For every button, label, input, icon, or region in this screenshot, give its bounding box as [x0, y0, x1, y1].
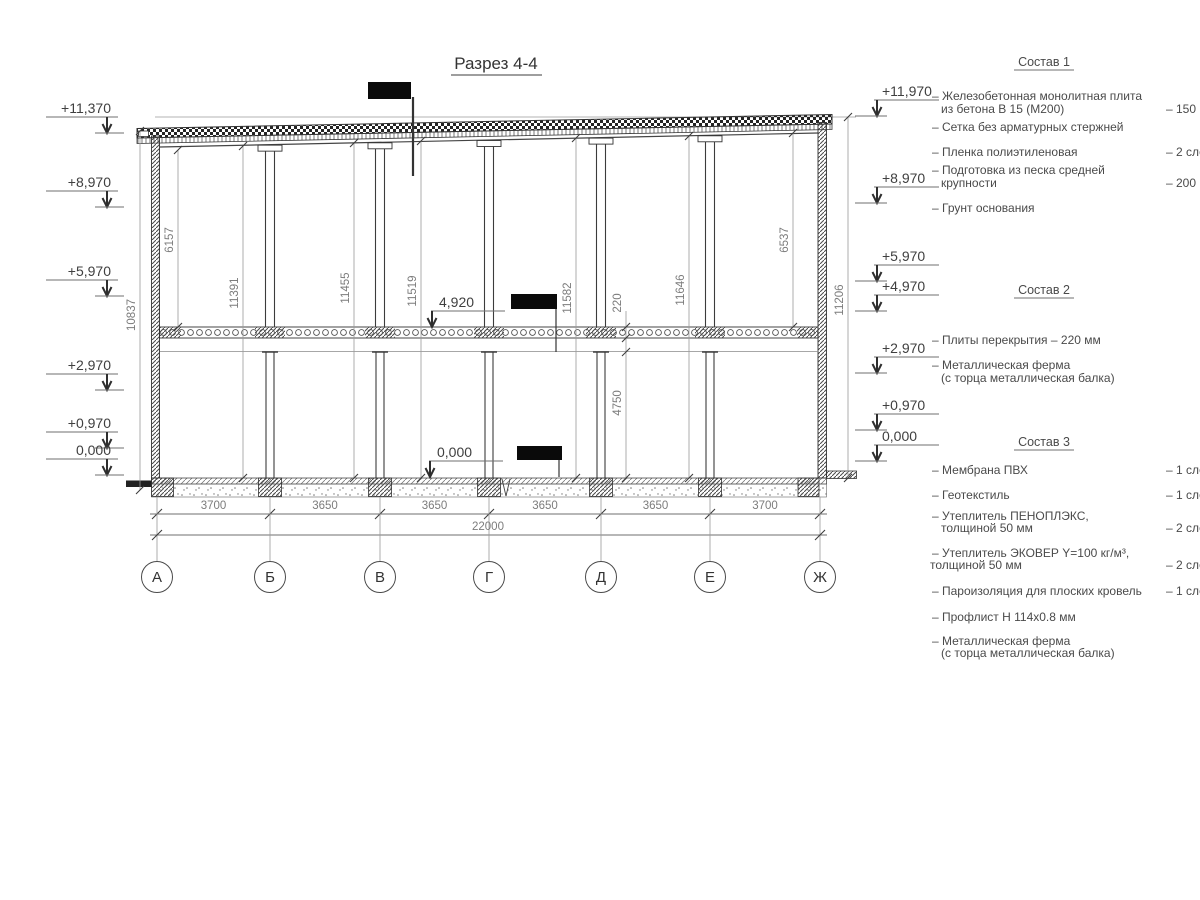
bay-dim-value: 3700	[752, 500, 778, 512]
vertical-dim: 6537	[779, 129, 797, 331]
vertical-dim: 11206	[834, 113, 852, 482]
axis-bubble: Д	[586, 562, 617, 593]
note-line: – Железобетонная монолитная плита	[932, 89, 1142, 103]
note-line: – Геотекстиль	[932, 488, 1010, 502]
axis-label: Ж	[813, 569, 827, 586]
footing	[798, 478, 819, 497]
dim-value: 6157	[164, 227, 176, 253]
column-lower	[702, 352, 718, 478]
vertical-dim: 4750	[612, 348, 630, 482]
column-upper	[477, 140, 501, 327]
right-wall	[818, 123, 827, 479]
dim-value: 11582	[562, 282, 574, 313]
level-value: +2,970	[882, 340, 925, 356]
level-value: +0,970	[68, 415, 111, 431]
axis-label: Е	[705, 569, 715, 586]
level-value: 4,920	[439, 294, 474, 310]
footing	[152, 478, 174, 497]
note-line: – Мембрана ПВХ	[932, 463, 1028, 477]
footing	[699, 478, 722, 497]
dim-value: 4750	[612, 390, 624, 416]
vertical-dim: 11646	[675, 132, 693, 482]
level-mark: +5,970	[46, 263, 124, 296]
level-mark: +8,970	[46, 174, 124, 207]
note-line: – Грунт основания	[932, 201, 1035, 215]
column-capital	[477, 140, 501, 146]
note-value: – 2 слоя	[1166, 521, 1200, 535]
drawing-title: Разрез 4-4	[454, 54, 537, 73]
floor-support-block	[365, 328, 395, 338]
column-lower	[593, 352, 609, 478]
axis-label: Г	[485, 569, 493, 586]
footing	[259, 478, 282, 497]
bay-dim-value: 3700	[201, 500, 227, 512]
note-item: – Металлическая ферма(с торца металличес…	[932, 358, 1115, 385]
axis-bubble: В	[365, 562, 396, 593]
level-value: +4,970	[882, 278, 925, 294]
blackout-callout	[511, 294, 557, 352]
note-item: – Грунт основания	[932, 201, 1035, 215]
note-item: – Сетка без арматурных стержней	[932, 120, 1123, 134]
note-item: – Мембрана ПВХ– 1 слой	[932, 463, 1200, 477]
level-value: +0,970	[882, 397, 925, 413]
level-value: +11,970	[882, 83, 932, 99]
axis-label: А	[152, 569, 162, 586]
note-group-title: Состав 3	[1018, 435, 1070, 449]
column-capital	[258, 145, 282, 151]
note-item: – Железобетонная монолитная плитаиз бето…	[932, 89, 1200, 116]
note-item: – Утеплитель ЭКОВЕР Y=100 кг/м³,толщиной…	[930, 546, 1200, 572]
bay-dim-value: 3650	[643, 500, 669, 512]
vertical-dim: 10837	[126, 127, 144, 494]
level-mark: +11,370	[46, 100, 124, 133]
note-item: – Геотекстиль– 1 слой	[932, 488, 1200, 502]
note-group-title: Состав 2	[1018, 283, 1070, 297]
column-lower	[262, 352, 278, 478]
note-line: толщиной 50 мм	[930, 558, 1022, 572]
axis-bubble: Г	[474, 562, 505, 593]
note-group: Состав 2– Плиты перекрытия – 220 мм– Мет…	[932, 283, 1115, 385]
vertical-dim: 6157	[164, 146, 182, 331]
section-drawing: Разрез 4-4 +11,370+8,970+5,970+2,970+0,9…	[0, 0, 1200, 900]
level-mark: 0,000	[426, 444, 504, 477]
level-mark: +8,970	[855, 170, 939, 203]
level-value: +5,970	[882, 248, 925, 264]
column-lower	[481, 352, 497, 478]
level-value: +11,370	[61, 100, 111, 116]
level-mark: +11,970	[855, 83, 939, 116]
dim-value: 11391	[229, 277, 241, 308]
column-upper	[589, 138, 613, 327]
vertical-dim: 220	[612, 293, 630, 352]
level-value: 0,000	[437, 444, 472, 460]
footing	[590, 478, 613, 497]
note-line: – Пленка полиэтиленовая	[932, 145, 1078, 159]
column-upper	[258, 145, 282, 327]
level-mark: 0,000	[855, 428, 939, 461]
column-capital	[368, 143, 392, 149]
vertical-dim: 11391	[229, 142, 247, 482]
floor-support-block	[797, 328, 818, 338]
axis-label: Д	[596, 569, 606, 586]
level-mark: +5,970	[855, 248, 939, 281]
blueprint-canvas: Разрез 4-4 +11,370+8,970+5,970+2,970+0,9…	[0, 0, 1200, 900]
level-mark: +0,970	[855, 397, 939, 430]
level-mark: 0,000	[46, 442, 124, 475]
note-line: (с торца металлическая балка)	[941, 646, 1115, 660]
note-line: крупности	[941, 176, 997, 190]
axis-bubble: А	[142, 562, 173, 593]
dim-value: 11455	[340, 272, 352, 303]
note-line: – Сетка без арматурных стержней	[932, 120, 1123, 134]
note-value: – 150 мм	[1166, 102, 1200, 116]
dim-value: 10837	[126, 299, 138, 331]
note-line: – Металлическая ферма	[932, 358, 1071, 372]
dim-value: 220	[612, 293, 624, 312]
note-value: – 1 слой	[1166, 584, 1200, 598]
blackout-callout	[517, 446, 562, 477]
level-value: +8,970	[882, 170, 925, 186]
note-item: – Подготовка из песка среднейкрупности– …	[932, 163, 1200, 190]
note-value: – 1 слой	[1166, 488, 1200, 502]
note-item: – Профлист Н 114х0.8 мм	[932, 610, 1076, 624]
floor-support-block	[474, 328, 504, 338]
left-wall	[152, 136, 160, 478]
floor-support-block	[586, 328, 616, 338]
vertical-dim: 11519	[407, 137, 425, 482]
bottom-dim-chain: 37003650365036503650370022000	[150, 497, 827, 561]
column-upper	[698, 136, 722, 327]
bay-dim-value: 3650	[312, 500, 338, 512]
note-line: – Подготовка из песка средней	[932, 163, 1105, 177]
note-item: – Пароизоляция для плоских кровель– 1 сл…	[932, 584, 1200, 598]
axis-label: Б	[265, 569, 275, 586]
axis-bubble: Б	[255, 562, 286, 593]
note-group: Состав 1– Железобетонная монолитная плит…	[932, 55, 1200, 215]
floor-support-block	[255, 328, 285, 338]
note-line: толщиной 50 мм	[941, 521, 1033, 535]
level-value: +2,970	[68, 357, 111, 373]
note-value: – 200 мм	[1166, 176, 1200, 190]
note-group: Состав 3– Мембрана ПВХ– 1 слой– Геотекст…	[930, 435, 1200, 660]
dim-value: 11206	[834, 284, 846, 315]
note-line: – Плиты перекрытия – 220 мм	[932, 333, 1101, 347]
footing	[478, 478, 501, 497]
note-line: – Пароизоляция для плоских кровель	[932, 584, 1142, 598]
axis-bubble: Е	[695, 562, 726, 593]
floor-support-block	[695, 328, 725, 338]
column-capital	[698, 136, 722, 142]
note-line: (с торца металлическая балка)	[941, 371, 1115, 385]
note-value: – 1 слой	[1166, 463, 1200, 477]
level-value: +5,970	[68, 263, 111, 279]
column-upper	[368, 143, 392, 327]
vertical-dim: 11582	[562, 134, 580, 482]
dim-value: 6537	[779, 227, 791, 253]
total-dim-value: 22000	[472, 521, 504, 533]
column-capital	[589, 138, 613, 144]
note-line: из бетона В 15 (М200)	[941, 102, 1064, 116]
bay-dim-value: 3650	[422, 500, 448, 512]
axis-bubble: Ж	[805, 562, 836, 593]
level-value: 0,000	[882, 428, 917, 444]
column-lower	[372, 352, 388, 478]
level-mark: +2,970	[855, 340, 939, 373]
bay-dim-value: 3650	[532, 500, 558, 512]
note-item: – Пленка полиэтиленовая– 2 слоя	[932, 145, 1200, 159]
note-group-title: Состав 1	[1018, 55, 1070, 69]
note-value: – 2 слоя	[1166, 145, 1200, 159]
level-value: +8,970	[68, 174, 111, 190]
level-mark: +2,970	[46, 357, 124, 390]
dim-value: 11519	[407, 275, 419, 306]
footing	[369, 478, 392, 497]
left-apron	[126, 481, 152, 488]
level-value: 0,000	[76, 442, 111, 458]
note-item: – Утеплитель ПЕНОПЛЭКС,толщиной 50 мм– 2…	[932, 509, 1200, 535]
level-mark: +4,970	[855, 278, 939, 311]
vertical-dim: 11455	[340, 139, 358, 482]
note-item: – Плиты перекрытия – 220 мм	[932, 333, 1101, 347]
note-line: – Профлист Н 114х0.8 мм	[932, 610, 1076, 624]
axis-label: В	[375, 569, 385, 586]
note-item: – Металлическая ферма(с торца металличес…	[932, 634, 1115, 660]
dim-value: 11646	[675, 274, 687, 305]
floor-support-block	[160, 328, 181, 338]
note-value: – 2 слоя	[1166, 558, 1200, 572]
